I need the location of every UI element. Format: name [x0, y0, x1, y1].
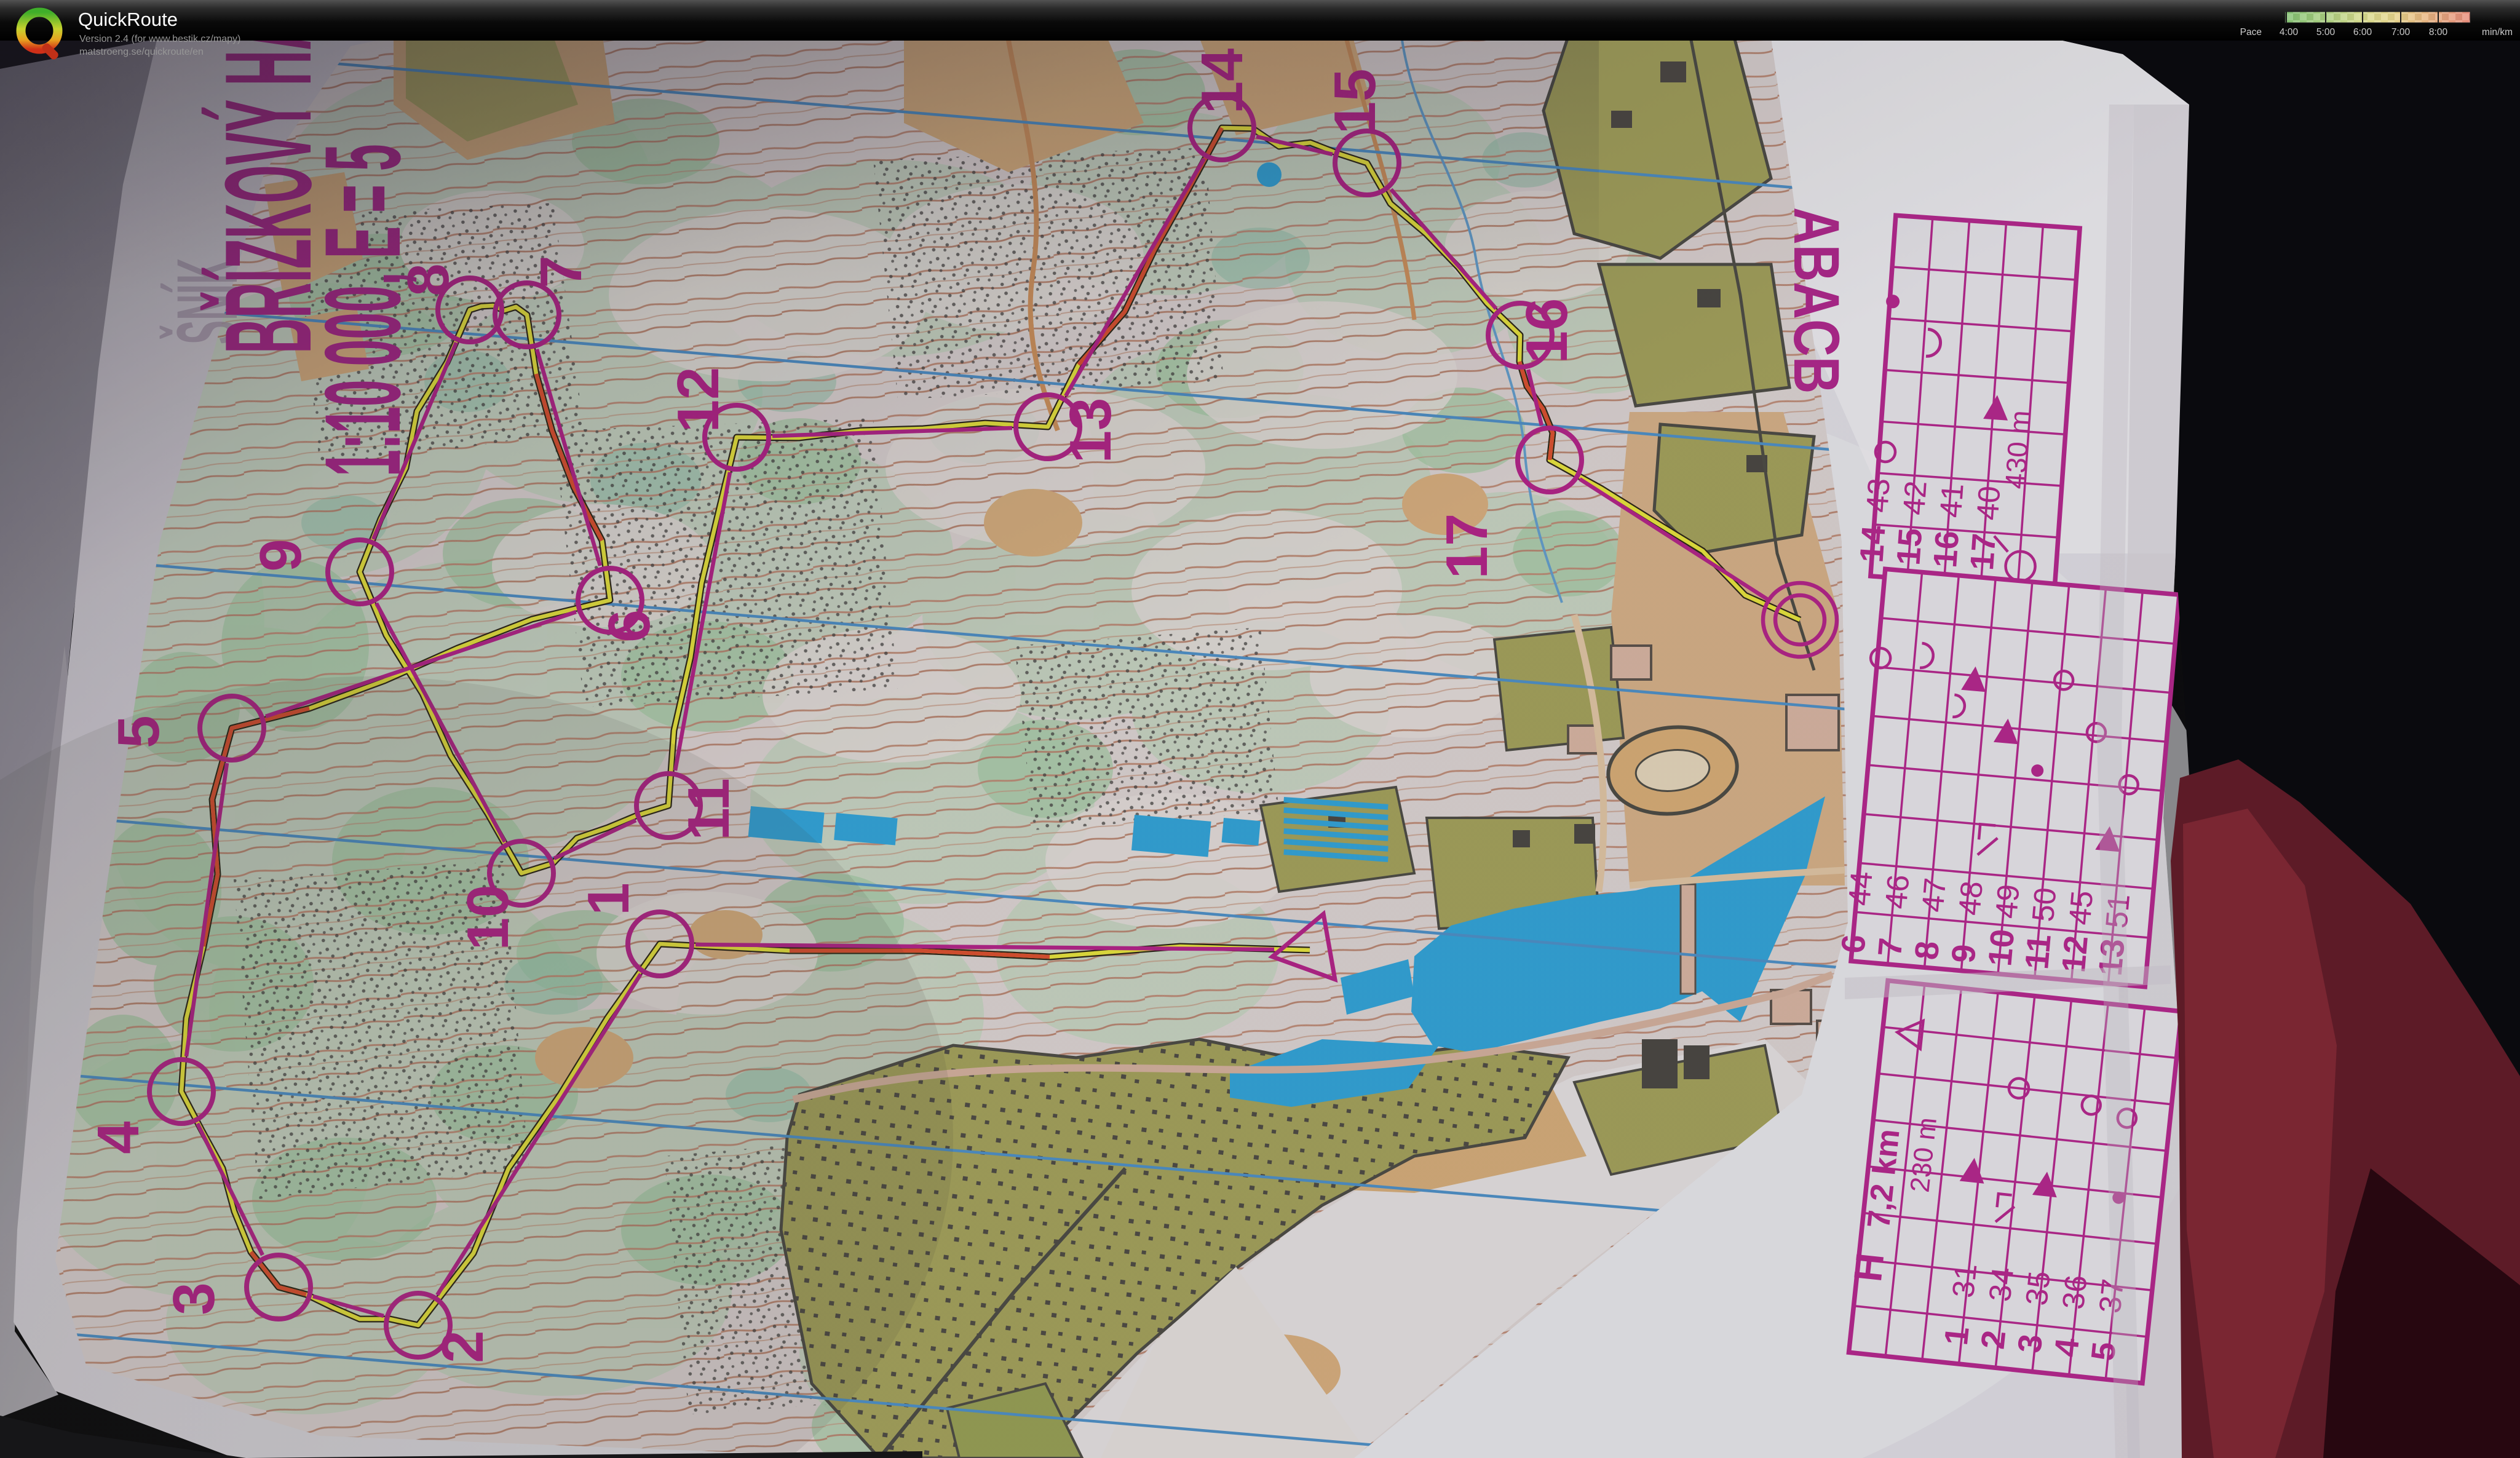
svg-text:5:00: 5:00 — [2316, 27, 2336, 38]
svg-text:7:00: 7:00 — [2391, 27, 2411, 38]
svg-text:QuickRoute: QuickRoute — [78, 9, 178, 30]
svg-text:Pace: Pace — [2240, 27, 2262, 38]
svg-text:8:00: 8:00 — [2429, 27, 2448, 38]
svg-text:6:00: 6:00 — [2353, 27, 2372, 38]
svg-text:matstroeng.se/quickroute/en: matstroeng.se/quickroute/en — [79, 47, 204, 57]
svg-text:min/km: min/km — [2482, 27, 2513, 38]
svg-text:4:00: 4:00 — [2280, 27, 2299, 38]
svg-text:Version 2.4 (for www.bestik.c: Version 2.4 (for www.bestik.cz/mapy) — [79, 34, 240, 44]
